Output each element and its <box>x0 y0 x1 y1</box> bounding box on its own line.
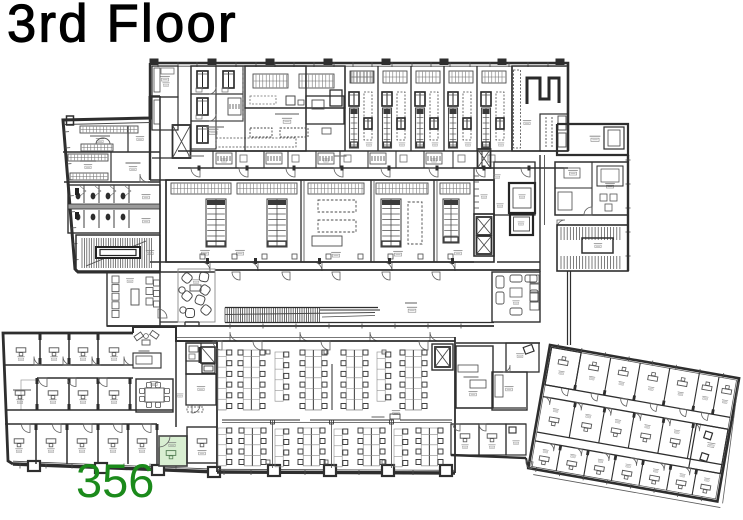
svg-text:356: 356 <box>76 454 154 507</box>
svg-text:3rd Floor: 3rd Floor <box>7 0 238 54</box>
